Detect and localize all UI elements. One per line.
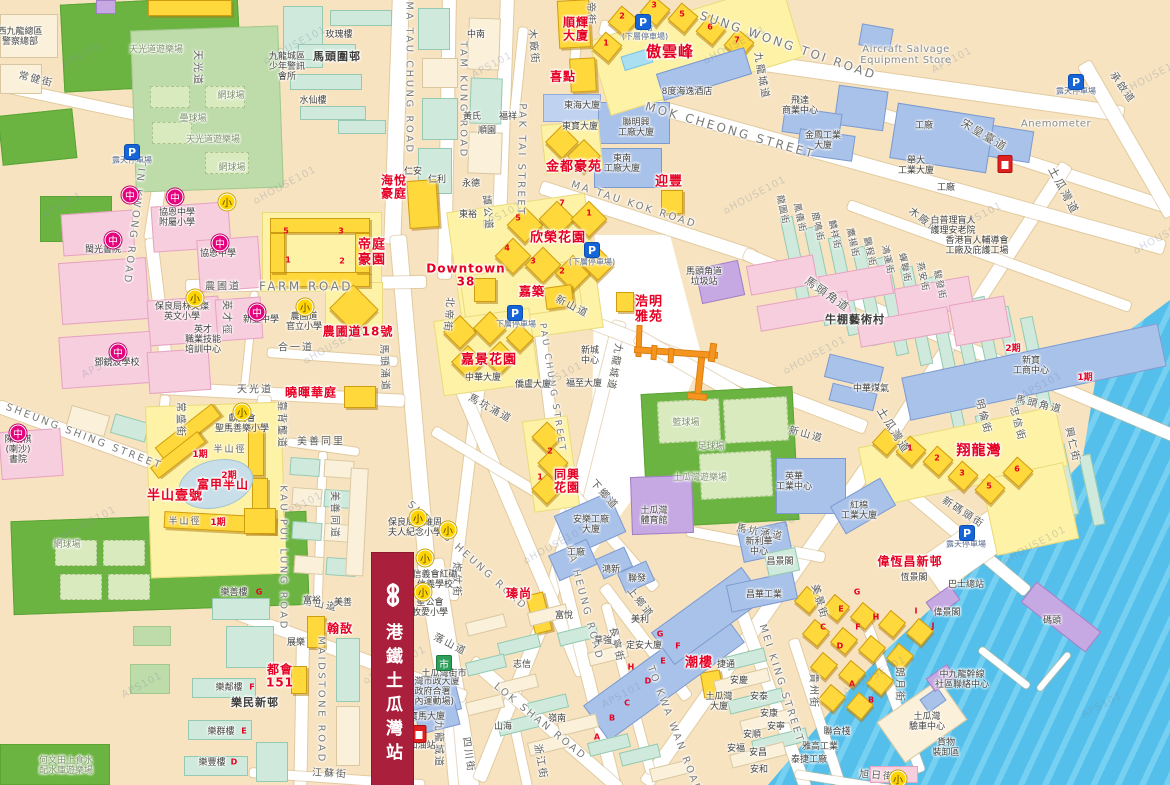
building-label: 安順 (743, 730, 761, 740)
street-label: 美善同里 (297, 436, 345, 447)
parking-icon: P (507, 305, 523, 321)
block-letter: I (915, 608, 918, 617)
building-label: 中九龍幹線 社區聯絡中心 (935, 670, 989, 690)
secondary-school-icon: 中 (10, 425, 27, 442)
block-letter: 6 (1014, 466, 1020, 475)
building-label: 樂豐樓 (198, 758, 225, 768)
block-letter: 1 (537, 474, 543, 483)
building-label: 新城 中心 (581, 346, 599, 366)
parking-note: 露天停車場 (946, 541, 986, 550)
development-label: 同興 花園 (554, 469, 580, 496)
building-block (422, 58, 458, 88)
building-label: 新寶 工商中心 (1013, 356, 1049, 376)
building-label: 協恩中學 附屬小學 (159, 208, 195, 228)
street-label: 鷹揚街 (844, 227, 860, 258)
park-label: 足球場 (697, 442, 724, 452)
primary-school-icon: 小 (410, 510, 427, 527)
building-label: 福祥 (499, 112, 517, 122)
block-letter: H (628, 664, 635, 673)
building-label: 福至大廈 (566, 379, 602, 389)
development-label: 翔龍灣 (957, 444, 1002, 460)
street-label: 農圃道 (205, 281, 241, 292)
park-label: 天光道遊樂場 (186, 135, 240, 145)
building-label: 中華煤氣 (853, 384, 889, 394)
building-label: 東海大廈 (564, 101, 600, 111)
building-label: 鴻新 (602, 565, 620, 575)
building-label: 美善 (334, 598, 352, 608)
block-letter: 5 (283, 228, 289, 237)
street-label: 朗月街 (893, 667, 904, 703)
building-label: 工廠 (915, 121, 933, 131)
park-label: 壘球場 (179, 114, 206, 124)
mtr-logo-icon (379, 581, 407, 609)
primary-school-icon: 小 (187, 290, 204, 307)
building-label: 安康 (760, 709, 778, 719)
building-label: 東寶大廈 (562, 122, 598, 132)
development-label: 海悅 豪庭 (381, 175, 407, 202)
building-label: 水仙樓 (299, 96, 326, 106)
block-letter: F (855, 624, 860, 633)
poi-label: Anemometer (1021, 118, 1091, 129)
building-label: 黃氏 (463, 112, 481, 122)
building-label: 金鳳工業 大廈 (805, 131, 841, 151)
development-label: 喜點 (550, 70, 576, 83)
primary-school-icon: 小 (415, 584, 432, 601)
market-icon: 市 (436, 655, 452, 671)
building-label: 飛達 商業中心 (782, 96, 818, 116)
development-label: 浩明 雅苑 (635, 295, 663, 324)
park-label: 土瓜灣遊樂場 (673, 473, 727, 483)
building-label: 工廠 (567, 548, 585, 558)
residential-tower (148, 0, 232, 16)
residential-block (330, 10, 392, 26)
building-label: 土瓜灣 驗車中心 (909, 712, 945, 732)
mtr-station-name: 港鐵土瓜灣站 (380, 623, 405, 767)
building-label: 安昌 (749, 748, 767, 758)
sports-court (103, 540, 145, 566)
residential-block (291, 521, 322, 541)
road (294, 638, 309, 785)
residential-block (338, 120, 386, 134)
block-letter: 3 (530, 258, 536, 267)
development-label: 迎豐 (655, 176, 683, 191)
primary-school-icon: 小 (234, 404, 251, 421)
development-label: 欣榮花園 (530, 232, 586, 247)
block-letter: J (932, 623, 935, 632)
park-label: 何文田上食水 配水庫遊樂場 (39, 756, 93, 776)
block-letter: 7 (559, 200, 565, 209)
estate-label: 牛棚藝術村 (825, 314, 885, 326)
development-label: 嘉築 (519, 285, 545, 298)
phase-label: 2期 (221, 471, 236, 481)
building-label: 定安大廈 (626, 641, 662, 651)
building-label: 新利華 中心 (745, 537, 772, 557)
parking-icon: P (124, 144, 140, 160)
block-letter: 3 (651, 2, 657, 11)
block-letter: H (873, 614, 880, 623)
residential-block (289, 457, 320, 477)
phase-label: 1期 (210, 518, 225, 528)
block-letter: 5 (986, 483, 992, 492)
street-label: MAIDSTONE ROAD (315, 636, 326, 764)
park-label: 天光道遊樂場 (129, 45, 183, 55)
park-label: 網球場 (217, 91, 244, 101)
building-label: 中南 (467, 30, 485, 40)
development-label: 潮樓 (685, 657, 713, 672)
residential-block (256, 742, 288, 782)
parking-icon: P (1068, 74, 1084, 90)
primary-school-icon: 小 (297, 299, 314, 316)
building-label: 貨物 裝卸區 (932, 738, 959, 758)
building-label: 碼頭 (1043, 616, 1061, 626)
block-letter: D (837, 643, 844, 652)
street-label: 美善同道 (328, 491, 339, 539)
park-label: 網球場 (218, 163, 245, 173)
building-block (345, 468, 369, 577)
building-label: 樂鄰樓 (215, 683, 242, 693)
sports-court (150, 86, 190, 108)
primary-school-icon: 小 (417, 550, 434, 567)
residential-tower (878, 610, 906, 638)
building-label: 玫瑰樓 (325, 30, 352, 40)
street-label: 木廠街 (526, 29, 540, 66)
block-letter: 3 (959, 470, 965, 479)
parking-icon: P (635, 14, 651, 30)
residential-tower (344, 386, 376, 408)
block-letter: 2 (619, 13, 625, 22)
block-letter: G (657, 631, 664, 640)
block-letter: D (645, 678, 652, 687)
residential-tower (270, 233, 285, 273)
estate-label: 樂民新邨 (231, 697, 279, 709)
street-label: 江蘇街 (312, 767, 349, 780)
block-letter: G (854, 589, 861, 598)
building-label: 土瓜灣 大廈 (705, 692, 732, 712)
building-block (336, 706, 360, 766)
building-block (467, 131, 502, 174)
block-letter: 2 (559, 268, 565, 277)
park-area (133, 626, 171, 646)
development-label: 帝庭 豪園 (358, 238, 386, 267)
street-label: 常盛街 (174, 402, 185, 438)
building-label: 泰捷工廠 (791, 755, 827, 765)
block-letter: A (594, 734, 600, 743)
sports-court (60, 574, 102, 600)
street-label: 天光道 (191, 50, 202, 86)
block-letter: 2 (547, 448, 553, 457)
secondary-school-icon: 中 (212, 235, 229, 252)
residential-block (336, 638, 360, 702)
phase-label: 1期 (1077, 373, 1092, 383)
block-letter: F (249, 684, 254, 693)
sports-court (723, 396, 789, 443)
development-label: 瑧尚 (506, 587, 532, 600)
block-letter: 1 (285, 257, 291, 266)
development-label: 半山壹號 (147, 490, 203, 505)
residential-block (212, 598, 270, 620)
block-letter: D (231, 759, 238, 768)
development-label: 翰敔 (327, 622, 353, 635)
building-label: 中華大廈 (465, 373, 501, 383)
building-label: 美利 (631, 615, 649, 625)
building-block (465, 613, 507, 636)
development-label: 都會 151 (266, 664, 294, 691)
block-letter: E (660, 658, 665, 667)
street-label: 半山徑 (213, 445, 246, 455)
block-letter: B (868, 697, 874, 706)
building-label: 工廠 (937, 183, 955, 193)
building-label: 寶馬大廈 (409, 712, 445, 722)
primary-school-icon: 小 (219, 194, 236, 211)
civic-building (96, 0, 116, 14)
phase-label: 1期 (192, 450, 207, 460)
development-label: 偉恆昌新邨 (877, 555, 942, 568)
block-letter: E (241, 728, 246, 737)
block-letter: E (838, 606, 843, 615)
block-letter: G (256, 589, 263, 598)
block-letter: 3 (338, 228, 344, 237)
parking-icon: P (959, 525, 975, 541)
gas-station-icon (998, 155, 1013, 173)
block-letter: 1 (907, 445, 913, 454)
phase-label: 2期 (1005, 344, 1020, 354)
mtr-station-banner[interactable]: 港鐵土瓜灣站 (371, 552, 414, 785)
block-letter: 2 (934, 455, 940, 464)
building-label: 東裕 (459, 210, 477, 220)
block-letter: C (624, 700, 630, 709)
building-label: 馬頭角道 垃圾站 (686, 267, 722, 287)
primary-school-icon: 小 (440, 522, 457, 539)
building-label: 安慶 (730, 676, 748, 686)
development-label: 順輝 大廈 (563, 17, 589, 44)
residential-tower (616, 292, 634, 312)
street-label: 英才徑 (220, 300, 231, 336)
street-label: TAM KUNG ROAD (457, 41, 468, 159)
building-label: 昌景閣 (766, 557, 793, 567)
residential-tower (830, 627, 858, 655)
building-label: 西九龍總區 警察總部 (0, 27, 43, 47)
secondary-school-icon: 中 (105, 232, 122, 249)
parking-icon: P (584, 242, 600, 258)
secondary-school-icon: 中 (122, 187, 139, 204)
building-label: 仁安 (404, 167, 422, 177)
development-label: 金都豪苑 (546, 161, 602, 176)
primary-school-icon: 小 (890, 771, 907, 785)
building-label: 展樂 (287, 638, 305, 648)
street-label: MA TAU CHUNG ROAD (403, 1, 414, 154)
building-label: 樂群樓 (207, 727, 234, 737)
block-letter: 5 (679, 11, 685, 20)
building-block (293, 555, 324, 575)
parking-note: 下層停車場 (496, 321, 536, 330)
building-label: 安泰 (750, 692, 768, 702)
watermark: ⌂HOUSE101 (1122, 54, 1170, 96)
building-label: 英才 職業技能 培訓中心 (185, 325, 221, 355)
block-letter: B (609, 715, 615, 724)
building-label: 紅棉 工業大廈 (841, 501, 877, 521)
block-letter: 5 (515, 215, 521, 224)
building-label: 東南 工廠大廈 (604, 154, 640, 174)
residential-block (110, 413, 150, 442)
block-letter: 4 (504, 245, 510, 254)
building-label: 聯明興 工廠大廈 (618, 118, 654, 138)
building-label: 志信 (513, 660, 531, 670)
residential-tower (244, 508, 276, 534)
street-label: 半山徑 (168, 517, 201, 527)
building-label: 英華 工業中心 (776, 472, 812, 492)
building-label: 香港盲人輔導會 工廠及庇護工場 (945, 236, 1008, 256)
development-label: Downtown 38 (426, 263, 505, 290)
block-letter: 6 (707, 24, 713, 33)
block-letter: C (820, 624, 826, 633)
block-letter: 1 (603, 40, 609, 49)
institution-building (58, 257, 150, 325)
estate-label: 馬頭圍邨 (313, 51, 361, 63)
industrial-building (833, 85, 888, 132)
street-label: 天光道 (237, 384, 273, 395)
block-letter: 2 (339, 258, 345, 267)
building-label: 巴士總站 (948, 580, 984, 590)
building-label: 聯合棧 (823, 727, 850, 737)
building-label: 聯發 (628, 574, 646, 584)
building-label: 恆景閣 (900, 573, 927, 583)
development-label: 傲雲峰 (646, 44, 694, 61)
building-label: 樂善樓 (220, 588, 247, 598)
park-label: 籃球場 (672, 418, 699, 428)
street-label: FARM ROAD (259, 280, 353, 293)
sports-court (108, 574, 150, 600)
street-label: 龍圖街 (774, 194, 790, 225)
building-label: 富裕 (303, 596, 321, 606)
building-label: 捷通 (717, 660, 735, 670)
building-label: 永德 (462, 179, 480, 189)
building-label: 8度海逸酒店 (662, 87, 713, 97)
road (511, 730, 534, 785)
residential-block (300, 106, 366, 120)
building-label: 順園 (478, 126, 496, 136)
building-label: 雅高工業 (802, 742, 838, 752)
building-label: 偉景閣 (933, 608, 960, 618)
park-area (0, 108, 77, 166)
residential-block (422, 98, 458, 140)
building-label: 保良局林文燦 英文小學 (155, 302, 209, 322)
parking-note: (下層停車場) (569, 259, 615, 268)
building-label: 安福 (727, 744, 745, 754)
building-label: 草強 (594, 636, 612, 646)
street-label: 貴州街 (807, 673, 818, 709)
building-label: 土瓜灣 體育館 (640, 506, 667, 526)
development-label: 曉暉華庭 (285, 386, 337, 399)
building-label: 富悅 (555, 611, 573, 621)
map-canvas[interactable]: 港鐵土瓜灣站 SUNG WONG TOI ROADMOK CHEONG STRE… (0, 0, 1170, 785)
building-label: 舉大 工業大廈 (898, 156, 934, 176)
secondary-school-icon: 中 (167, 189, 184, 206)
building-label: 嶺南 (548, 714, 566, 724)
building-label: 昌華工業 (746, 590, 782, 600)
development-label: 嘉景花園 (461, 354, 517, 369)
building-label: 山海 (494, 722, 512, 732)
residential-block (418, 8, 450, 50)
residential-tower (406, 179, 439, 229)
street-label: 馬頭涌道 (378, 344, 391, 392)
block-letter: 1 (586, 210, 592, 219)
building-label: 安和 (750, 765, 768, 775)
building-label: 仁利 (428, 175, 446, 185)
street-label: 靠背壟道 (275, 401, 286, 449)
block-letter: F (675, 643, 680, 652)
building-label: 聖公會 牧愛小學 (412, 598, 448, 618)
secondary-school-icon: 中 (249, 304, 266, 321)
building-label: 安寧 (767, 722, 785, 732)
